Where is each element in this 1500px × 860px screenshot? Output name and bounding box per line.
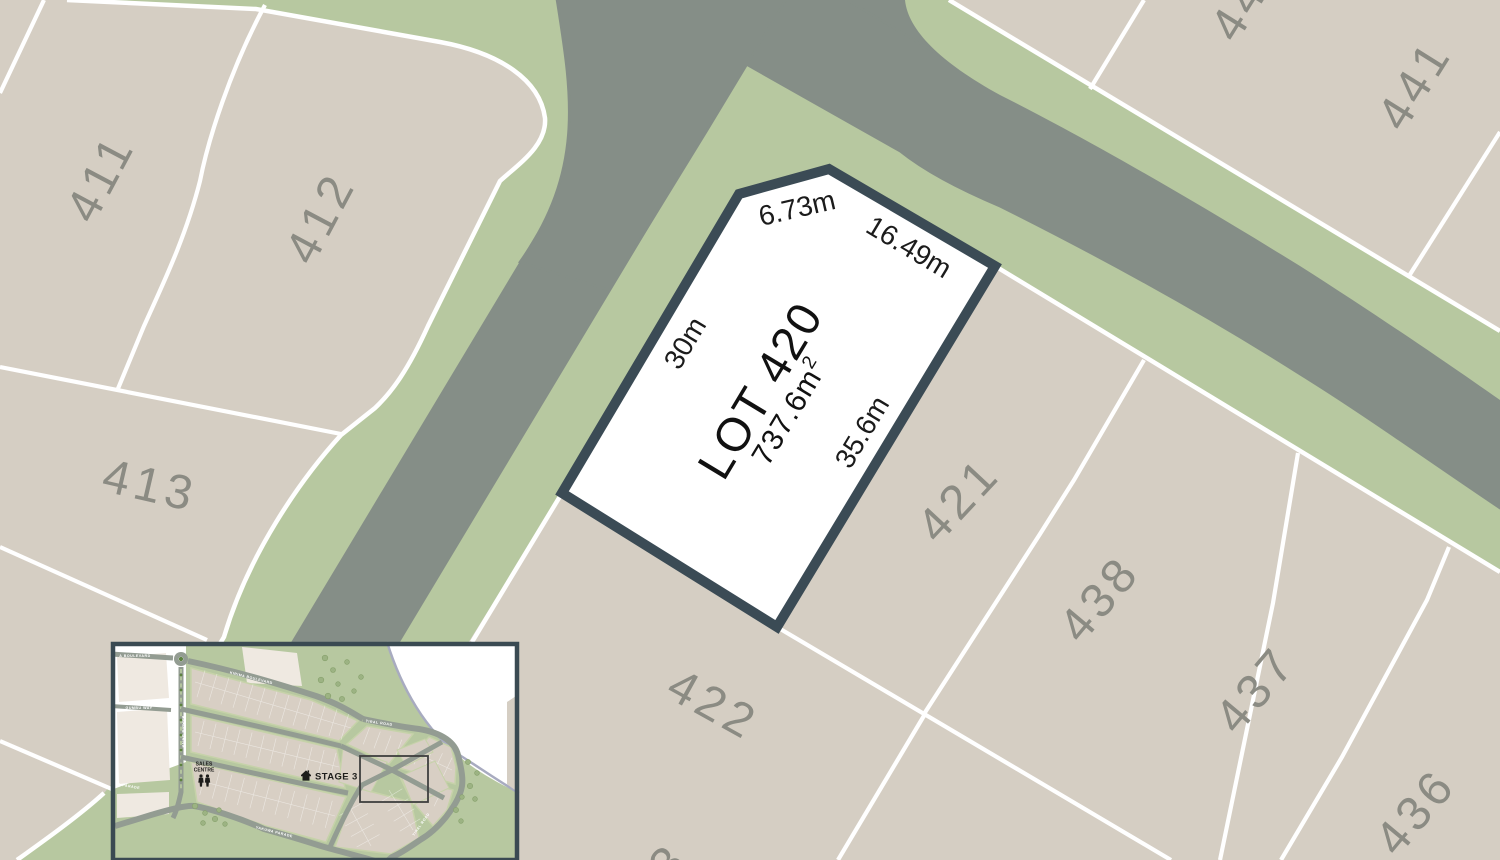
svg-text:A BOULEVARD: A BOULEVARD [119,654,150,658]
svg-text:GUMBU WAY: GUMBU WAY [126,706,153,710]
svg-text:CENTRE: CENTRE [194,768,215,774]
svg-text:BARDIN DRIVE: BARDIN DRIVE [181,716,185,748]
svg-text:STAGE 3: STAGE 3 [315,772,358,783]
